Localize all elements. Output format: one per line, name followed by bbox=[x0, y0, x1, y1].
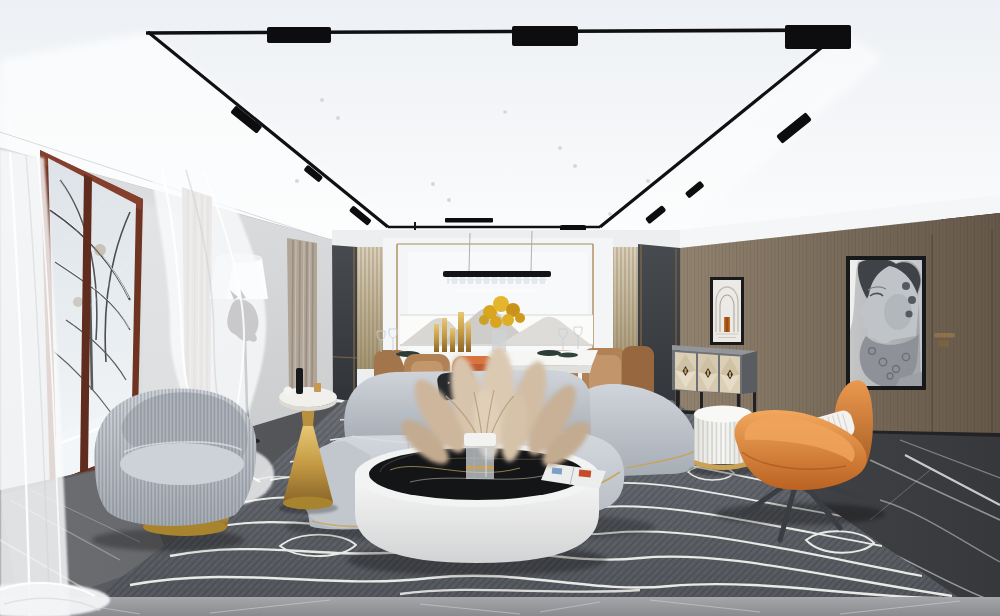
scene-canvas bbox=[0, 0, 1000, 616]
art-greek-statue bbox=[846, 256, 926, 390]
interior-render bbox=[0, 0, 1000, 616]
art-arch bbox=[710, 277, 744, 345]
console-doors bbox=[675, 352, 740, 393]
door-handle bbox=[934, 333, 955, 338]
